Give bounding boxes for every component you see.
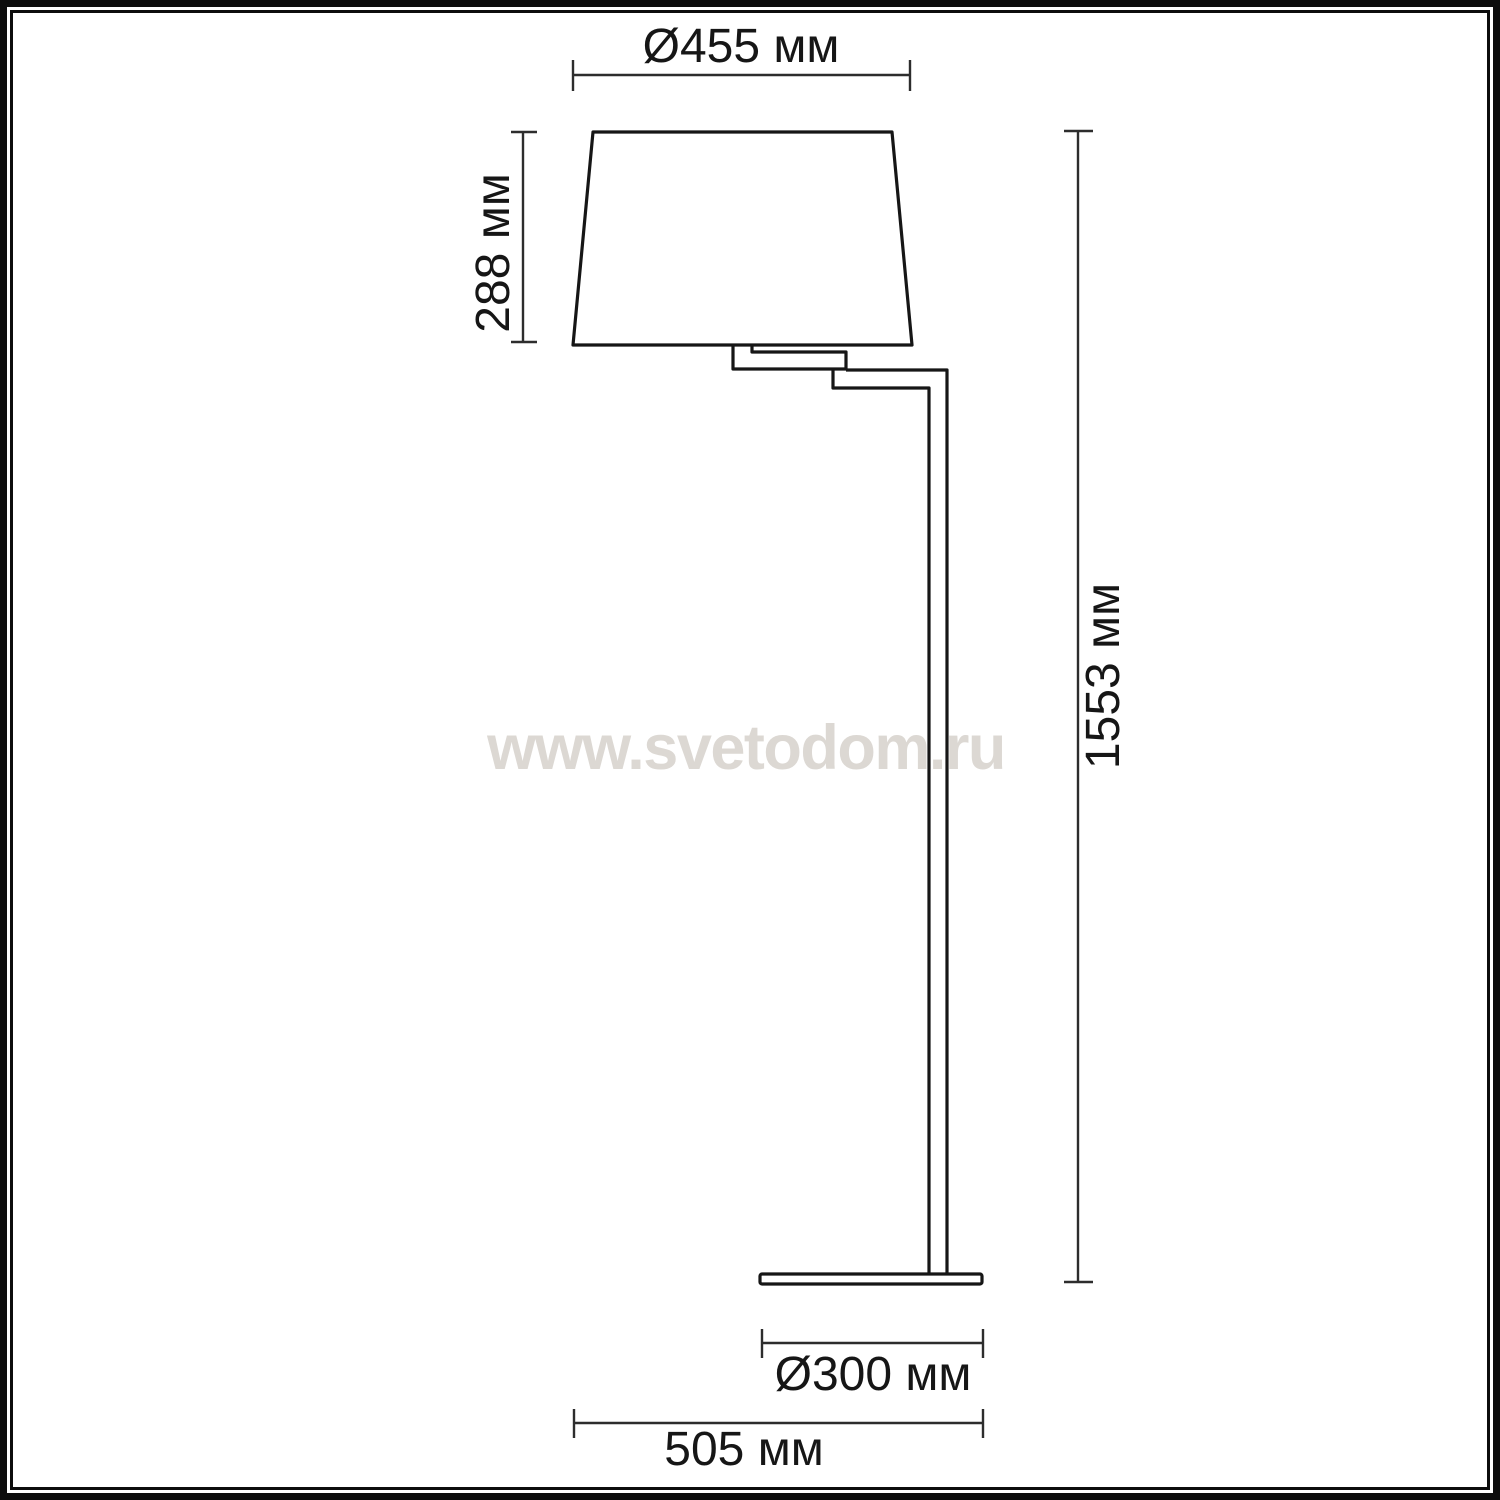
dimension-label-total-height: 1553 мм: [1077, 583, 1130, 769]
dimension-drawing-page: www.svetodom.ru Ø455 мм 288 мм 1553 мм: [0, 0, 1500, 1500]
lamp-base-plate: [760, 1274, 982, 1284]
dimension-overall-width: 505 мм: [574, 1409, 983, 1476]
dimension-shade-diameter: Ø455 мм: [573, 20, 910, 91]
watermark-text: www.svetodom.ru: [486, 713, 1005, 783]
lamp-arm-bracket: [733, 346, 846, 369]
lamp-arm-outer-edge: [846, 370, 947, 1274]
dimension-label-overall-width: 505 мм: [664, 1423, 823, 1476]
dimension-label-shade-diameter: Ø455 мм: [643, 20, 840, 73]
dimension-shade-height: 288 мм: [467, 132, 537, 342]
dimension-base-diameter: Ø300 мм: [762, 1329, 983, 1401]
dimension-total-height: 1553 мм: [1064, 131, 1130, 1282]
dimension-label-base-diameter: Ø300 мм: [775, 1348, 972, 1401]
lamp-shade-outline: [573, 132, 912, 345]
lamp-arm-inner-edge: [833, 369, 929, 1274]
dimension-label-shade-height: 288 мм: [467, 173, 520, 332]
floor-lamp-dimension-diagram: www.svetodom.ru Ø455 мм 288 мм 1553 мм: [0, 0, 1500, 1500]
